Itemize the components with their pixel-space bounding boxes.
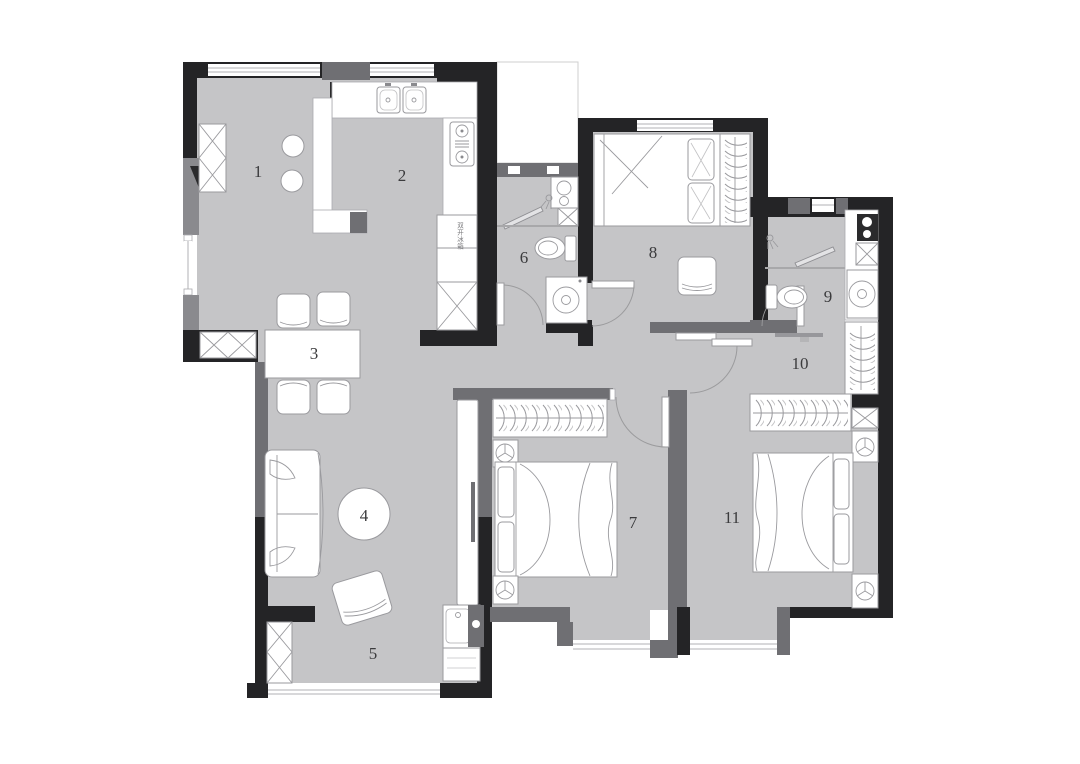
room-label-9: 9 — [824, 287, 833, 306]
shelf-icon — [775, 333, 823, 337]
floor-plan-svg: 双开冰箱 — [0, 0, 1080, 764]
nightstand-icon — [852, 574, 878, 608]
cabinet-icon — [852, 408, 878, 428]
room-label-10: 10 — [792, 354, 809, 373]
sofa-icon — [265, 450, 323, 577]
bench-icon — [678, 257, 716, 295]
wardrobe-icon — [493, 399, 607, 437]
pillow-icon — [834, 514, 849, 564]
bedroom-11-bay-window — [690, 640, 777, 654]
room-label-4: 4 — [360, 506, 369, 525]
floor-plan-page: 双开冰箱 — [0, 0, 1080, 764]
wardrobe-icon — [750, 394, 851, 431]
pillar — [322, 62, 370, 80]
room-label-5: 5 — [369, 644, 378, 663]
room-label-1: 1 — [254, 162, 263, 181]
wardrobe-icon — [845, 322, 878, 394]
vanity-sink-icon — [551, 177, 578, 208]
pillow-icon — [498, 467, 514, 517]
room-label-11: 11 — [724, 508, 740, 527]
dining-chair-icon — [317, 380, 350, 414]
room-label-8: 8 — [649, 243, 658, 262]
balcony-cabinet-icon — [267, 622, 292, 683]
tv-console-icon — [457, 400, 478, 605]
dining-chair-icon — [317, 292, 350, 326]
shoe-cabinet-icon — [199, 124, 226, 192]
pouf-icon — [281, 170, 303, 192]
nightstand-icon — [852, 431, 878, 462]
bathroom-cabinet-icon — [856, 243, 878, 265]
shelf-bracket — [800, 337, 809, 342]
washing-machine-icon — [847, 270, 878, 318]
dining-chair-icon — [277, 380, 310, 414]
tv-icon — [471, 482, 475, 542]
bed-icon — [753, 453, 853, 572]
pillow-icon — [498, 522, 514, 572]
vanity-sink-icon — [857, 214, 878, 241]
room-label-6: 6 — [520, 248, 529, 267]
bedroom-7-bay-window — [573, 640, 650, 654]
toilet-icon — [535, 236, 576, 261]
room-label-2: 2 — [398, 166, 407, 185]
floor-bathroom-9 — [765, 210, 845, 330]
nightstand-icon — [493, 576, 518, 604]
toilet-icon — [766, 285, 807, 309]
light-well — [497, 62, 578, 163]
bed-icon — [495, 462, 617, 577]
stove-icon — [450, 122, 474, 166]
dining-chair-icon — [277, 294, 310, 328]
balcony-sink-cabinet-icon — [443, 605, 484, 681]
room-label-3: 3 — [310, 344, 319, 363]
bedroom-7-furniture — [493, 399, 617, 604]
washing-machine-icon — [546, 277, 587, 323]
storage-cabinet-icon — [200, 332, 256, 358]
pillow-icon — [834, 459, 849, 509]
floor-bedroom-11-bay — [687, 607, 777, 645]
bathroom-cabinet-icon — [558, 208, 578, 226]
balcony-window — [268, 686, 440, 699]
bed-icon — [594, 134, 720, 226]
wardrobe-icon — [720, 134, 750, 226]
fridge-icon: 双开冰箱 — [437, 215, 477, 282]
room-label-7: 7 — [629, 513, 638, 532]
pouf-icon — [282, 135, 304, 157]
kitchen-tall-cabinet-icon — [437, 282, 477, 330]
bedroom-8-window — [637, 120, 713, 131]
